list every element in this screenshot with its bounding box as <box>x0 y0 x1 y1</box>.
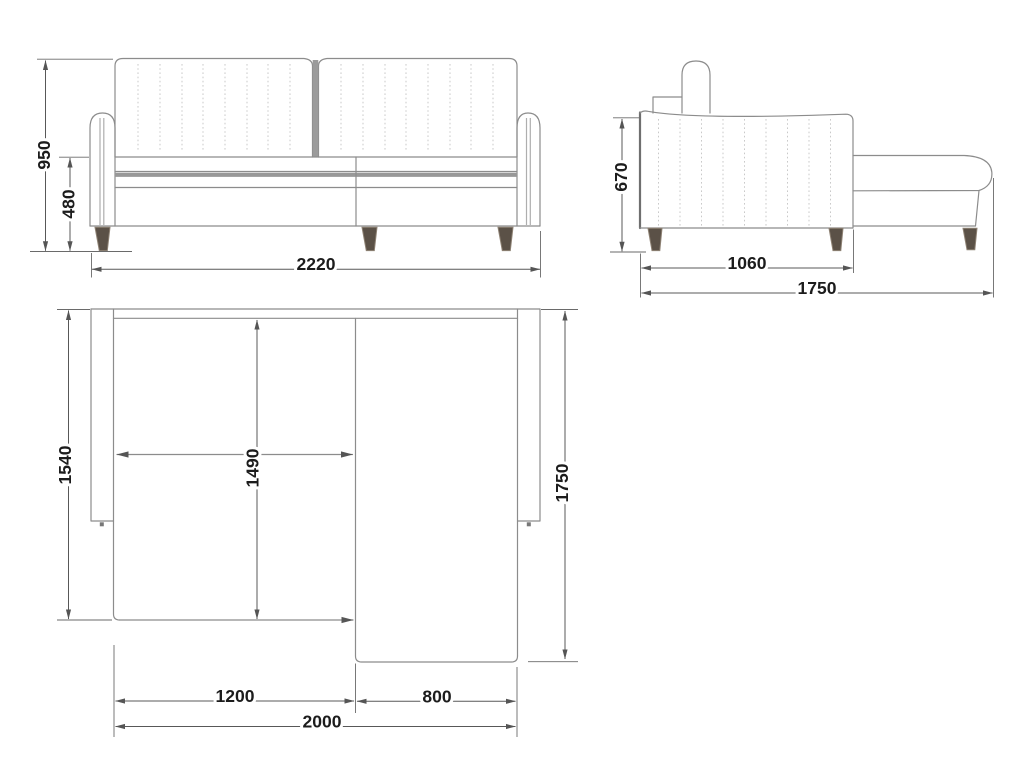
chaise-roll-outline <box>853 156 992 191</box>
sofa-dimension-drawing: 950 480 2220 670 1060 1750 <box>0 0 1024 768</box>
dim-label-plan-seat-width: 1200 <box>216 686 255 706</box>
front-leg-left <box>95 227 110 250</box>
plan-seat-left-edge <box>114 309 120 620</box>
front-leg-middle <box>362 227 377 250</box>
dim-label-plan-inner-width: 2000 <box>303 712 342 732</box>
dim-label-front-seat-height: 480 <box>59 189 79 218</box>
plan-armrest-left <box>91 309 114 521</box>
dim-label-front-overall-height: 950 <box>34 140 54 169</box>
dim-label-side-overall-depth: 1750 <box>798 278 837 298</box>
armrest-left-seam <box>100 118 104 225</box>
dim-label-side-body-depth: 1060 <box>728 253 767 273</box>
dim-label-plan-body-depth: 1540 <box>55 445 75 484</box>
front-leg-right <box>498 227 513 250</box>
front-view: 950 480 2220 <box>30 59 541 278</box>
armrest-right <box>517 113 540 226</box>
seat-cushion-profile <box>653 97 682 113</box>
dim-label-side-backrest-height: 670 <box>611 162 631 191</box>
armrest-left-mark <box>100 522 104 526</box>
dim-label-front-overall-width: 2220 <box>297 254 336 274</box>
armrest-right-mark <box>527 522 531 526</box>
dim-label-plan-chaise-width: 800 <box>422 687 451 707</box>
backrest-outline <box>640 111 853 228</box>
cushion-divider <box>313 60 319 157</box>
chaise-leg <box>963 228 977 250</box>
armrest-left <box>90 113 115 226</box>
plan-view: 1540 1490 1750 1200 800 2000 <box>55 309 578 737</box>
plan-chaise-outline <box>356 319 518 663</box>
side-leg-front <box>648 228 662 250</box>
back-cushion-left <box>115 59 313 158</box>
tufting-lines-side <box>659 119 831 226</box>
blueprint-canvas: 950 480 2220 670 1060 1750 <box>0 0 1024 768</box>
back-cushion-profile <box>682 61 710 113</box>
plan-armrest-right <box>518 309 541 521</box>
chaise-base-outline <box>853 191 979 227</box>
armrest-right-seam <box>527 118 531 225</box>
dim-label-plan-chaise-depth: 1750 <box>552 463 572 502</box>
back-cushion-right <box>319 59 518 158</box>
side-view: 670 1060 1750 <box>610 61 994 298</box>
dim-label-plan-inner-depth: 1490 <box>243 448 263 487</box>
side-leg-rear <box>829 228 843 250</box>
